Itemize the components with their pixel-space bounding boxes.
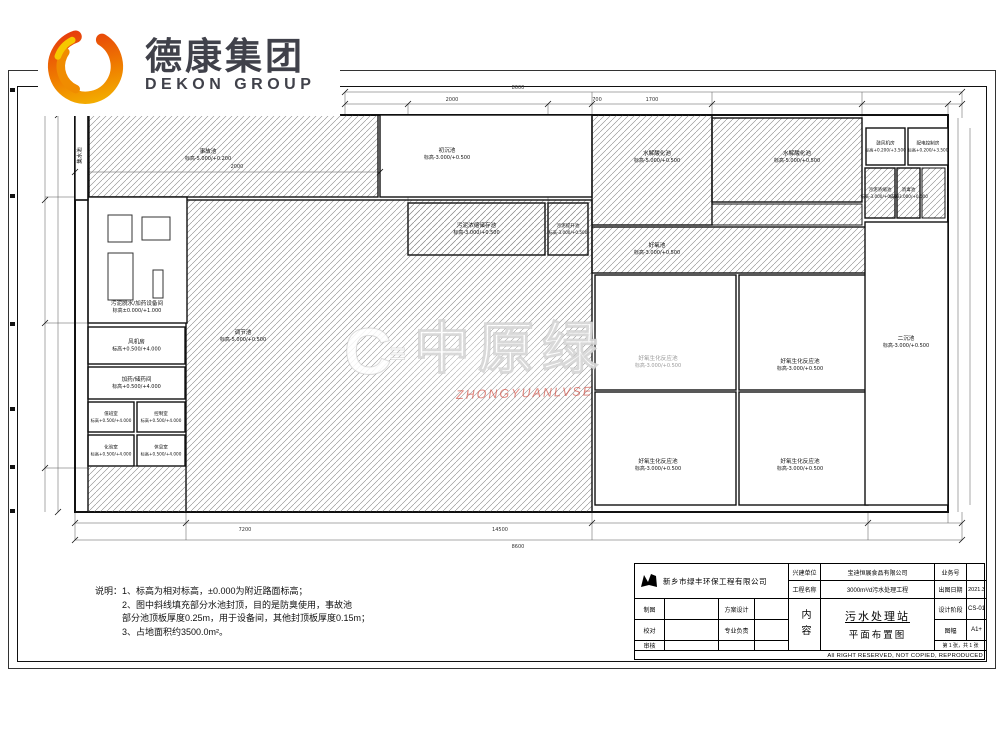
brand-name-cn: 德康集团 xyxy=(145,38,315,77)
tank-鼓风机房 xyxy=(866,128,905,165)
tank-elevation: 标高-3.000/+0.500 xyxy=(549,229,588,236)
tank-休息室 xyxy=(137,435,185,466)
rights-notice: All RIGHT RESERVED, NOT COPIED, REPRODUC… xyxy=(635,651,986,661)
drawn-by-label: 制图 xyxy=(635,599,665,620)
dimension-text: 1700 xyxy=(646,97,659,103)
tank-label: 污泥浓缩储存池 xyxy=(457,221,497,229)
owner-value: 宝迪恒展食品有限公司 xyxy=(821,564,935,581)
tank-label: 集水池 xyxy=(76,147,84,164)
tank-label: 调节池 xyxy=(235,328,252,336)
tank-elevation: 标高+0.500/+4.000 xyxy=(91,417,132,424)
tank-elevation: 标高-5.000/+0.200 xyxy=(185,155,231,162)
dimension-text: 2000 xyxy=(231,164,244,170)
tank-elevation: 标高-3.000/+0.500 xyxy=(453,229,499,236)
tank-消毒池 xyxy=(897,168,920,218)
dekon-logo: 德康集团 DEKON GROUP xyxy=(38,12,340,116)
content-title: 污水处理站 xyxy=(845,608,910,624)
note-line-2: 2、图中斜线填充部分水池封顶，目的是防臭使用，事故池 xyxy=(122,599,370,613)
design-company-name: 新乡市绿丰环保工程有限公司 xyxy=(663,576,767,587)
lvfeng-logo-glyph xyxy=(639,572,659,590)
tank-label: 鼓风机房 xyxy=(876,140,895,147)
tank-水解酸化池 xyxy=(592,115,712,225)
tank-elevation: 标高+0.500/+4.000 xyxy=(141,451,182,458)
tank-label: 污泥脱水/加药设备间 xyxy=(111,299,164,307)
tank-elevation: 标高+0.500/+4.000 xyxy=(141,417,182,424)
tank-label: 好氧生化反应池 xyxy=(780,457,820,465)
tank-elevation: 标高-3.000/+0.500 xyxy=(634,249,680,256)
tank-elevation: 标高-5.000/+0.500 xyxy=(634,157,680,164)
tank-污泥浓缩储存池 xyxy=(408,203,545,255)
tank-elevation: 标高-3.000/+0.500 xyxy=(424,154,470,161)
tank-elevation: 标高-3.000/+0.500 xyxy=(635,362,681,369)
design-stage-value: CS-01 xyxy=(967,599,986,620)
tank-label: 好氧生化反应池 xyxy=(780,357,820,365)
tank-elevation: 标高-5.000/+0.500 xyxy=(774,157,820,164)
tank-elevation: 标高-5.000/+0.500 xyxy=(220,336,266,343)
design-stage-label: 设计阶段 xyxy=(935,599,967,620)
discipline-lead-value xyxy=(755,620,789,641)
project-label: 工程名称 xyxy=(789,581,821,599)
checked-by-value xyxy=(665,620,719,641)
tank-label: 化验室 xyxy=(104,444,118,451)
brand-name-en: DEKON GROUP xyxy=(145,76,315,94)
job-no-label: 业务号 xyxy=(935,564,967,581)
hatch-area xyxy=(712,204,862,225)
axis-marker xyxy=(10,465,15,469)
content-cell: 污水处理站 平面布置图 xyxy=(821,599,935,651)
dimension-text: 14500 xyxy=(492,527,508,533)
tank-label: 好氧生化反应池 xyxy=(638,457,678,465)
tank-elevation: 标高-3.000/+0.500 xyxy=(635,465,681,472)
checked-by-label: 校对 xyxy=(635,620,665,641)
tank-好氧生化反应池 xyxy=(739,275,868,390)
dimension-text: 2000 xyxy=(446,97,459,103)
tank-配电控制房 xyxy=(908,128,948,165)
title-block-company-cell: 新乡市绿丰环保工程有限公司 xyxy=(635,564,789,599)
content-label: 内容 xyxy=(789,599,821,651)
tank-label: 值班室 xyxy=(104,410,118,417)
notes: 说明：1、标高为相对标高，±0.000为附近路面标高； 2、图中斜线填充部分水池… xyxy=(95,585,370,639)
tank-控制室 xyxy=(137,402,185,432)
tank-label: 休息室 xyxy=(154,444,168,451)
tank-label: 控制室 xyxy=(154,410,168,417)
tank-label: 好氧生化反应池 xyxy=(638,354,678,362)
tank-elevation: 标高±0.000/+1.000 xyxy=(113,307,162,314)
tank-elevation: 标高+0.200/+3.500 xyxy=(908,147,949,154)
axis-marker xyxy=(10,407,15,411)
tank-初沉池 xyxy=(380,115,592,197)
scheme-design-label: 方案设计 xyxy=(719,599,755,620)
tank-好氧生化反应池 xyxy=(595,275,736,390)
tank-elevation: 标高-3.000/+0.500 xyxy=(889,193,928,200)
tank-elevation: 标高+0.500/+4.000 xyxy=(112,346,161,353)
tank-污泥浓缩池 xyxy=(865,168,895,218)
axis-marker xyxy=(10,509,15,513)
tank-好氧生化反应池 xyxy=(739,392,868,505)
drawing-sheet: 调节池标高-5.000/+0.500事故池标高-5.000/+0.200初沉池标… xyxy=(0,0,1000,750)
sheet-count: 第 1 张，共 1 张 xyxy=(935,641,986,651)
sheet-size-label: 图幅 xyxy=(935,620,967,641)
tank-label: 污泥浓缩池 xyxy=(869,186,892,193)
tank-elevation: 标高+0.200/+3.500 xyxy=(865,147,906,154)
job-no-value xyxy=(967,564,986,581)
axis-marker xyxy=(10,194,15,198)
hatch-area xyxy=(88,466,186,512)
tank-化验室 xyxy=(88,435,134,466)
tank-label: 污泥提升池 xyxy=(557,222,580,229)
tank-值班室 xyxy=(88,402,134,432)
drawn-by-value xyxy=(665,599,719,620)
tank-elevation: 标高+0.500/+4.000 xyxy=(112,383,161,390)
dimension-text: 700 xyxy=(592,97,602,103)
review-value xyxy=(665,641,719,651)
tank-elevation: 标高+0.500/+4.000 xyxy=(91,451,132,458)
tank-二沉池 xyxy=(865,222,948,505)
tank-label: 水解酸化池 xyxy=(643,149,671,157)
tank-加药/储药间 xyxy=(88,367,185,399)
note-line-1: 说明：1、标高为相对标高，±0.000为附近路面标高； xyxy=(95,585,370,599)
note-line-3: 部分池顶板厚度0.25m，用于设备间，其他封顶板厚度0.15m； xyxy=(122,612,370,626)
title-block: 新乡市绿丰环保工程有限公司 兴建单位 宝迪恒展食品有限公司 业务号 工程名称 3… xyxy=(634,563,985,660)
dekon-logo-mark xyxy=(38,17,133,112)
tank-elevation: 标高-3.000/+0.500 xyxy=(883,342,929,349)
date-value: 2021.3 xyxy=(967,581,986,599)
tank-污泥提升池 xyxy=(548,203,588,255)
axis-marker xyxy=(10,322,15,326)
axis-marker xyxy=(10,88,15,92)
hatch-area xyxy=(922,168,945,218)
tank-label: 水解酸化池 xyxy=(783,149,811,157)
tank-elevation: 标高-3.000/+0.500 xyxy=(777,365,823,372)
tank-elevation: 标高-3.000/+0.500 xyxy=(777,465,823,472)
sheet-size-value: A1+ xyxy=(967,620,986,641)
equipment-box xyxy=(108,215,132,242)
tank-label: 加药/储药间 xyxy=(122,375,152,383)
review-label: 审核 xyxy=(635,641,665,651)
tank-label: 事故池 xyxy=(200,147,217,155)
review-blank-1 xyxy=(719,641,755,651)
project-value: 3000m³/d污水处理工程 xyxy=(821,581,935,599)
tank-label: 风机房 xyxy=(128,338,145,346)
tank-好氧生化反应池 xyxy=(595,392,736,505)
tank-label: 二沉池 xyxy=(898,334,915,342)
equipment-box xyxy=(153,270,163,298)
tank-label: 配电控制房 xyxy=(917,140,940,147)
tank-label: 初沉池 xyxy=(439,146,456,154)
discipline-lead-label: 专业负责 xyxy=(719,620,755,641)
content-subtitle: 平面布置图 xyxy=(849,627,907,641)
tank-风机房 xyxy=(88,327,185,364)
equipment-box xyxy=(142,217,170,240)
owner-label: 兴建单位 xyxy=(789,564,821,581)
date-label: 出图日期 xyxy=(935,581,967,599)
dimension-text: 8600 xyxy=(512,544,525,550)
review-blank-2 xyxy=(755,641,789,651)
tank-label: 好氧池 xyxy=(649,241,666,249)
scheme-design-value xyxy=(755,599,789,620)
dimension-text: 7200 xyxy=(239,527,252,533)
dimension-text: 8600 xyxy=(512,85,525,91)
note-line-4: 3、占地面积约3500.0m²。 xyxy=(122,626,370,640)
equipment-box xyxy=(108,253,133,300)
tank-label: 消毒池 xyxy=(902,186,916,193)
tank-事故池 xyxy=(89,115,378,197)
